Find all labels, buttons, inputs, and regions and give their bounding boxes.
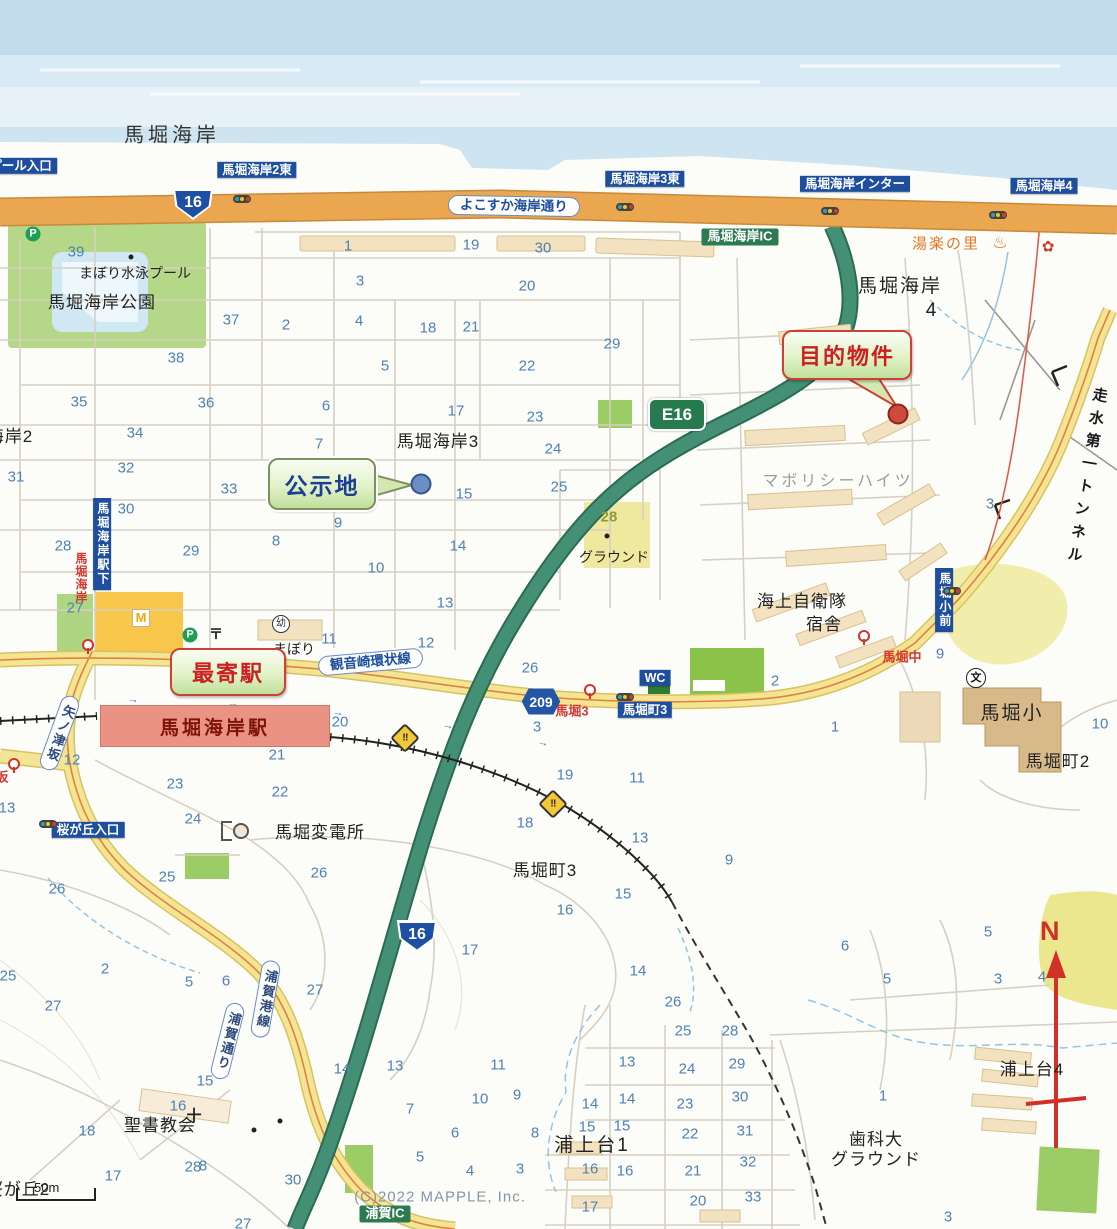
route16-road [0, 204, 1117, 220]
callout-kojichi-label: 公示地 [285, 467, 360, 501]
mabori-kaigan-station: 馬堀海岸駅 [100, 705, 330, 747]
map-base-art [0, 0, 1117, 1229]
callout-target-label: 目的物件 [799, 339, 895, 371]
e16-badge: E16 [648, 398, 706, 431]
map-canvas: 馬堀海岸駅 16 16 E16 209 馬堀海岸市営プール入口馬堀海岸2東馬堀海… [0, 0, 1117, 1229]
callout-nearest-label: 最寄駅 [192, 656, 264, 688]
callout-nearest-station: 最寄駅 [170, 648, 286, 696]
scale-bar [16, 1188, 96, 1201]
station-name: 馬堀海岸駅 [160, 713, 270, 740]
callout-kojichi: 公示地 [268, 458, 376, 510]
callout-target-property: 目的物件 [782, 330, 912, 380]
target-property-marker [889, 405, 908, 424]
kojichi-marker [412, 475, 431, 494]
compass-north-label: N [1040, 916, 1060, 947]
